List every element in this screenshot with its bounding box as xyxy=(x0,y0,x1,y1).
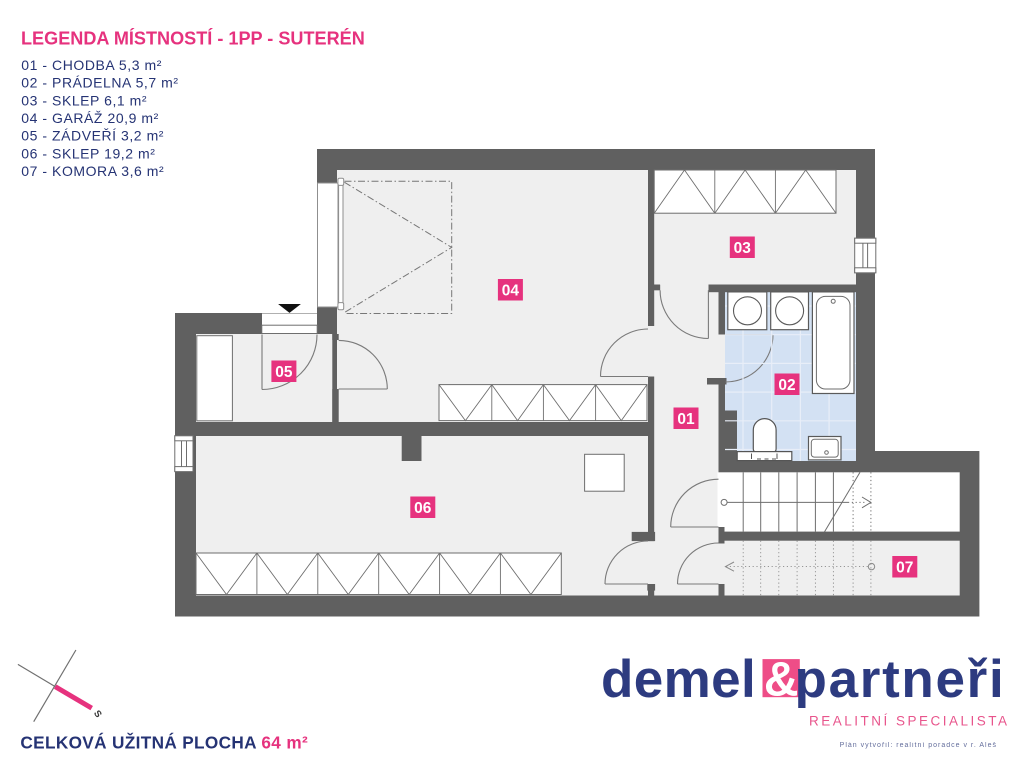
svg-text:05 - ZÁDVEŘÍ 3,2 m²: 05 - ZÁDVEŘÍ 3,2 m² xyxy=(21,128,164,144)
svg-text:07: 07 xyxy=(896,559,913,576)
svg-text:04 - GARÁŽ 20,9 m²: 04 - GARÁŽ 20,9 m² xyxy=(21,110,159,126)
svg-text:07 - KOMORA 3,6 m²: 07 - KOMORA 3,6 m² xyxy=(21,163,164,179)
svg-text:LEGENDA MÍSTNOSTÍ - 1PP - SUTE: LEGENDA MÍSTNOSTÍ - 1PP - SUTERÉN xyxy=(21,27,365,48)
svg-text:&: & xyxy=(764,654,799,707)
svg-text:partneři: partneři xyxy=(795,650,1006,709)
svg-text:Plán vytvořil: realitní poradc: Plán vytvořil: realitní poradce v r. Ale… xyxy=(840,742,997,749)
svg-text:demel: demel xyxy=(601,650,756,709)
svg-text:06: 06 xyxy=(414,500,432,517)
svg-text:01: 01 xyxy=(677,411,695,428)
svg-text:04: 04 xyxy=(502,282,520,299)
svg-text:01 - CHODBA 5,3 m²: 01 - CHODBA 5,3 m² xyxy=(21,57,162,73)
svg-text:06 - SKLEP 19,2 m²: 06 - SKLEP 19,2 m² xyxy=(21,145,155,161)
svg-text:REALITNÍ SPECIALISTA: REALITNÍ SPECIALISTA xyxy=(809,714,1010,729)
svg-text:03: 03 xyxy=(734,240,752,257)
svg-text:CELKOVÁ UŽITNÁ PLOCHA 64 m²: CELKOVÁ UŽITNÁ PLOCHA 64 m² xyxy=(20,733,308,753)
svg-text:05: 05 xyxy=(275,364,293,381)
svg-text:02 - PRÁDELNA 5,7 m²: 02 - PRÁDELNA 5,7 m² xyxy=(21,75,178,91)
svg-text:02: 02 xyxy=(778,377,795,394)
svg-text:03 - SKLEP 6,1 m²: 03 - SKLEP 6,1 m² xyxy=(21,92,147,108)
